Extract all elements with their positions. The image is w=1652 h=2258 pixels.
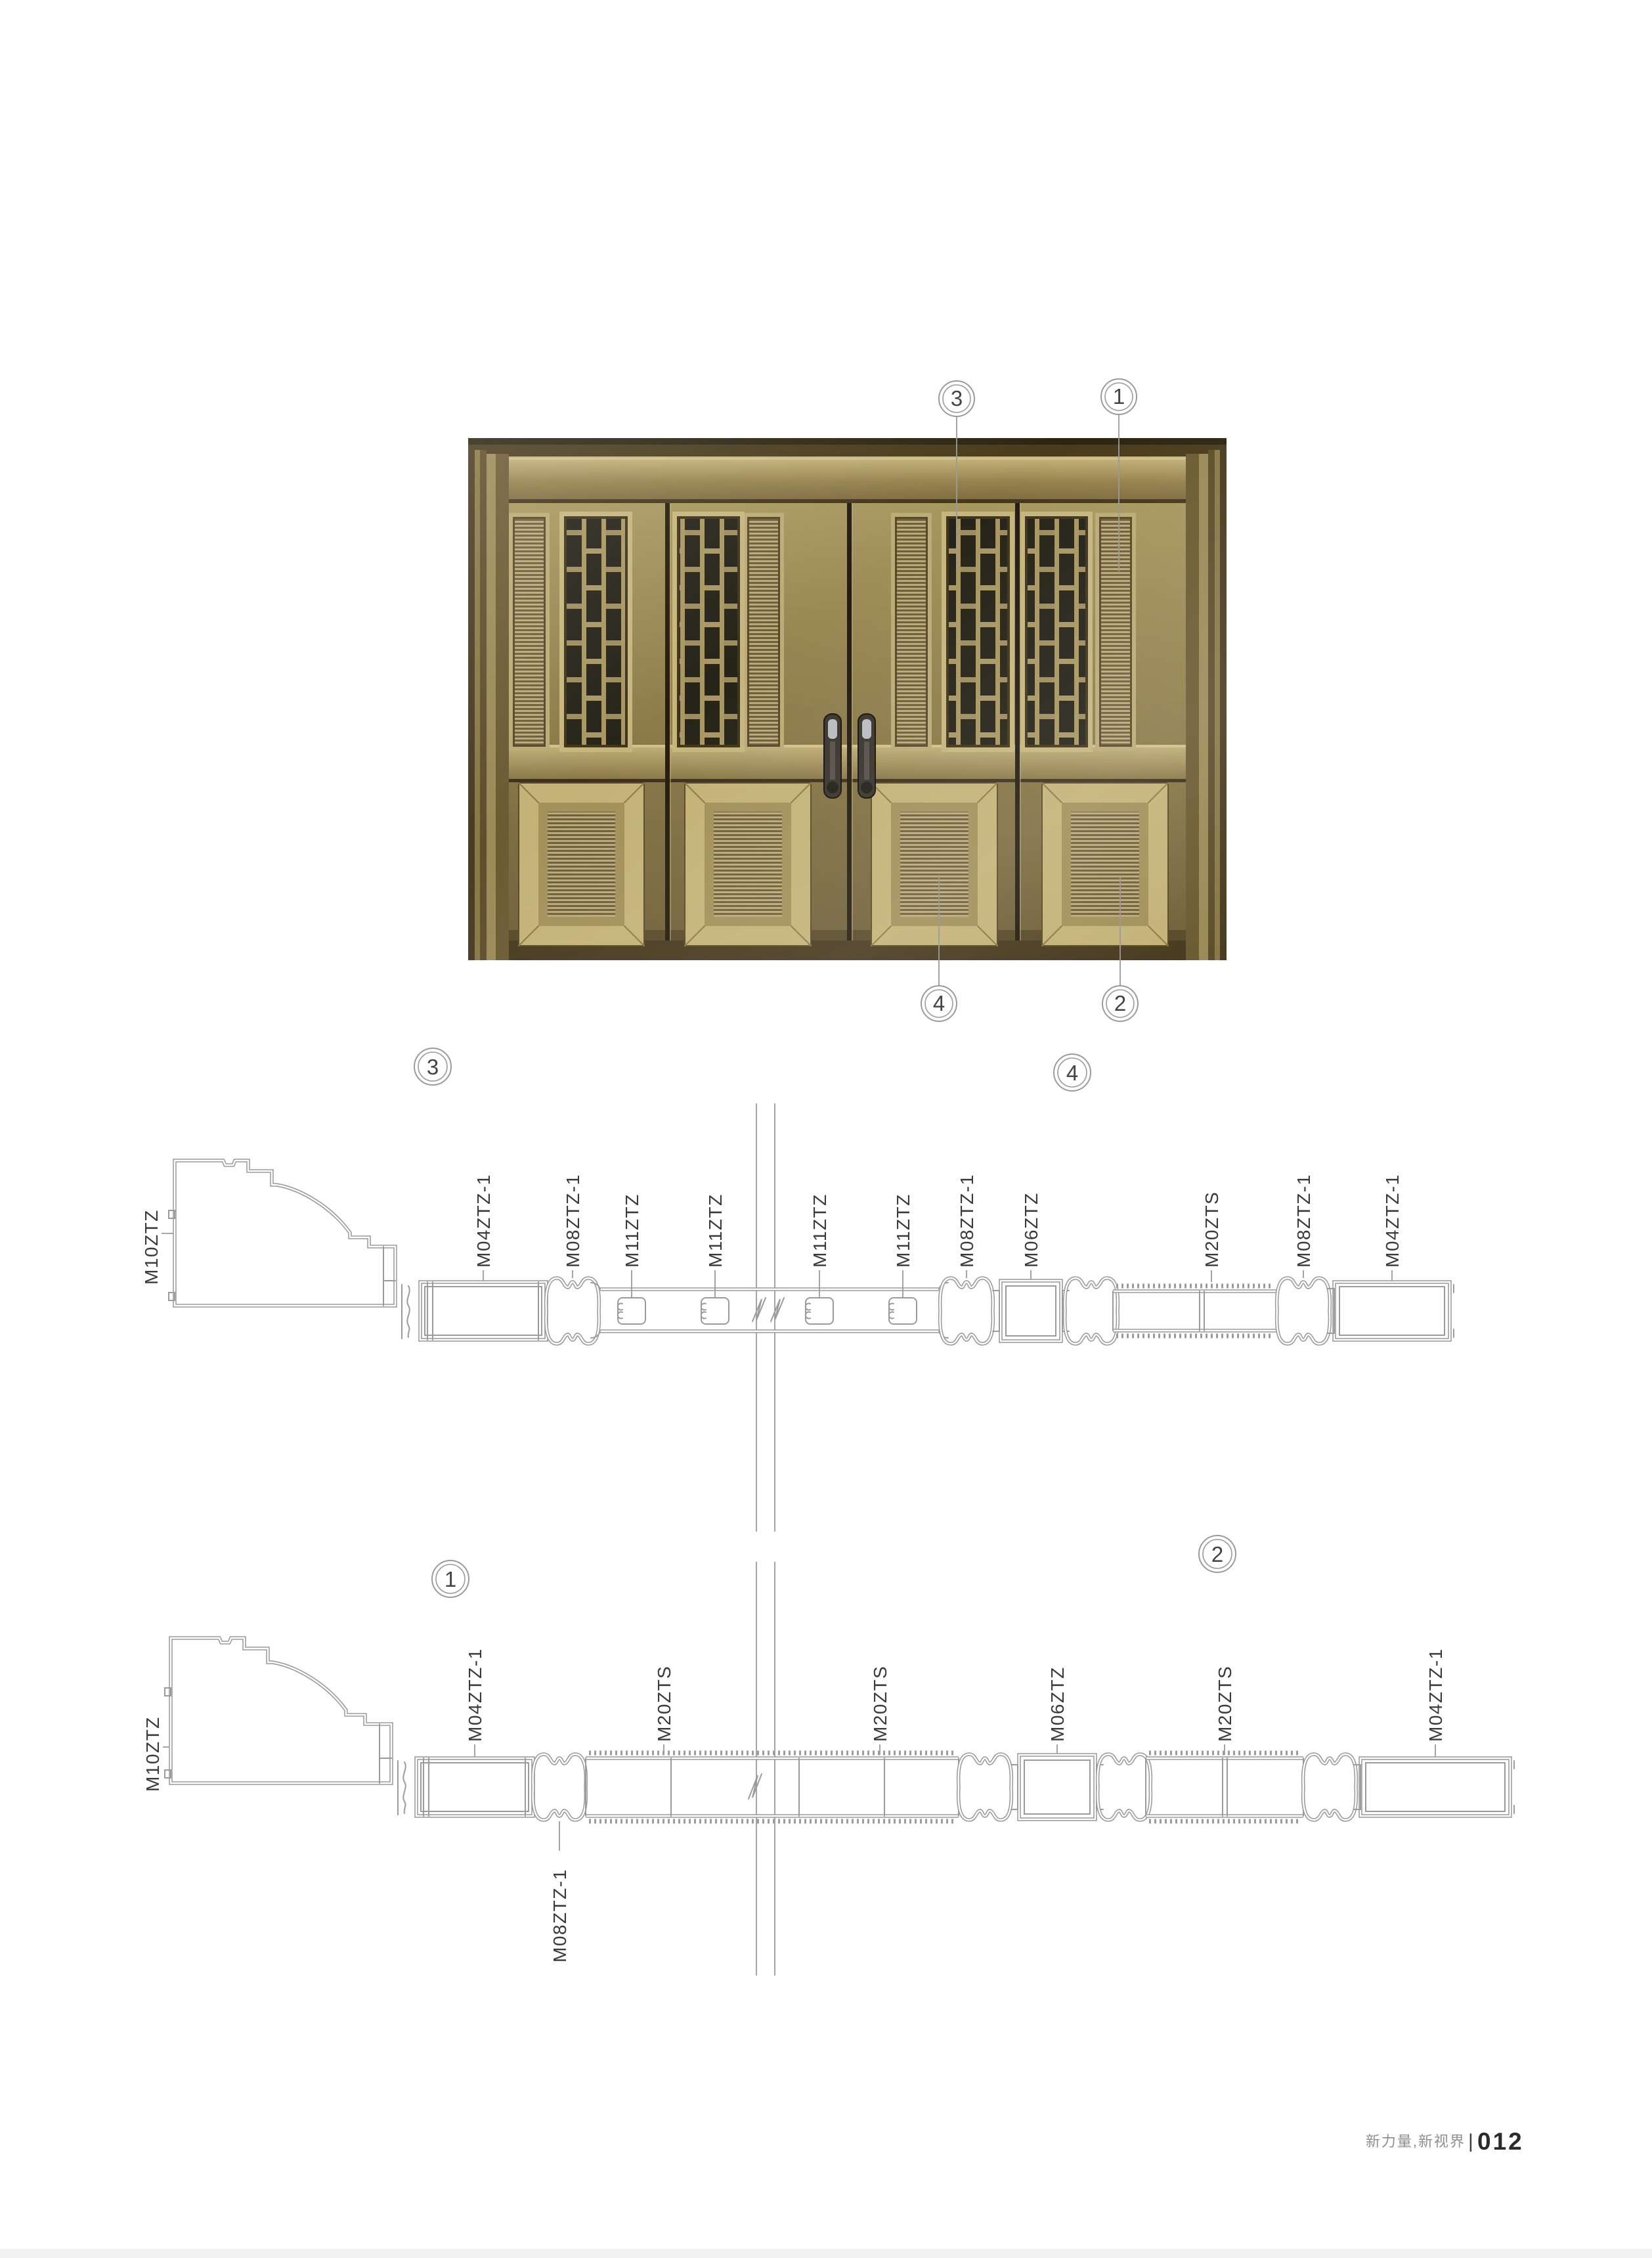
break-mark: [752, 1298, 784, 1321]
part-label: M20ZTS: [1215, 1666, 1235, 1742]
m04-profile-end: [1328, 1282, 1454, 1340]
footer-brand: 新力量,新视界: [1366, 2133, 1466, 2150]
footer-page-number: 012: [1477, 2128, 1524, 2155]
break-mark: [749, 1774, 762, 1799]
section-top: 3 4: [141, 1048, 1454, 1532]
callout-number: 3: [951, 386, 963, 410]
section-number: 3: [427, 1055, 439, 1079]
page-edge-shadow: [0, 2249, 1652, 2258]
part-label: M06ZTZ: [1047, 1666, 1068, 1742]
callout-number: 4: [933, 991, 945, 1015]
part-label: M11ZTZ: [622, 1193, 642, 1268]
m04-profile: [416, 1758, 533, 1816]
m20-ribbed-profile: [1113, 1286, 1277, 1336]
m20-ribbed-profile: [586, 1753, 959, 1821]
part-label: M11ZTZ: [810, 1193, 830, 1268]
callout-number: 1: [1113, 384, 1125, 409]
part-label: M06ZTZ: [1021, 1192, 1041, 1268]
callout-1: 1: [1101, 379, 1137, 414]
m06-profile: [1011, 1755, 1103, 1819]
footer-divider: |: [1468, 2131, 1473, 2152]
section-callout-2: 2: [1199, 1536, 1236, 1572]
callout-2: 2: [1102, 986, 1138, 1021]
seal-profile: [398, 1761, 406, 1815]
m04-profile: [420, 1282, 546, 1340]
section-callout-3: 3: [414, 1048, 451, 1085]
m06-profile: [993, 1281, 1069, 1341]
break-lines: [756, 1562, 775, 1976]
jamb-profile-drawing: [169, 1161, 395, 1306]
jamb-profile-drawing: [165, 1638, 391, 1783]
callout-number: 2: [1114, 991, 1126, 1015]
part-label: M11ZTZ: [705, 1193, 726, 1268]
section-number: 1: [445, 1567, 456, 1591]
section-callout-4: 4: [1054, 1054, 1091, 1091]
section-callout-1: 1: [432, 1561, 469, 1597]
section-bottom: 1 2: [142, 1536, 1514, 1976]
seal-profile: [402, 1285, 410, 1339]
part-label: M08ZTZ-1: [1293, 1174, 1314, 1268]
part-label: M08ZTZ-1: [563, 1174, 583, 1268]
part-label: M04ZTZ-1: [473, 1174, 494, 1268]
callout-3: 3: [939, 381, 974, 416]
part-label: M10ZTZ: [141, 1209, 162, 1285]
m20-ribbed-profile: [1146, 1753, 1303, 1821]
catalog-page: 3 1 4 2 3 4: [0, 0, 1652, 2258]
part-label: M04ZTZ-1: [1382, 1174, 1402, 1268]
page-footer: 新力量,新视界 | 012: [1366, 2128, 1524, 2155]
part-label: M10ZTZ: [142, 1716, 163, 1792]
part-label: M08ZTZ-1: [550, 1869, 570, 1962]
part-label: M20ZTS: [870, 1666, 890, 1742]
m04-profile-end: [1354, 1758, 1514, 1816]
part-label: M20ZTS: [654, 1666, 674, 1742]
part-label: M04ZTZ-1: [1425, 1648, 1446, 1742]
page-canvas: 3 1 4 2 3 4: [0, 0, 1652, 2258]
photo-sheen: [468, 438, 1227, 960]
glazing-channel: [591, 1283, 948, 1338]
part-label: M11ZTZ: [893, 1193, 913, 1268]
part-label: M20ZTS: [1202, 1191, 1222, 1268]
callout-4: 4: [921, 986, 957, 1021]
part-label: M04ZTZ-1: [465, 1648, 485, 1742]
door-photo: [468, 438, 1227, 960]
part-label: M08ZTZ-1: [957, 1174, 977, 1268]
section-number: 2: [1211, 1542, 1223, 1566]
section-number: 4: [1066, 1061, 1078, 1085]
